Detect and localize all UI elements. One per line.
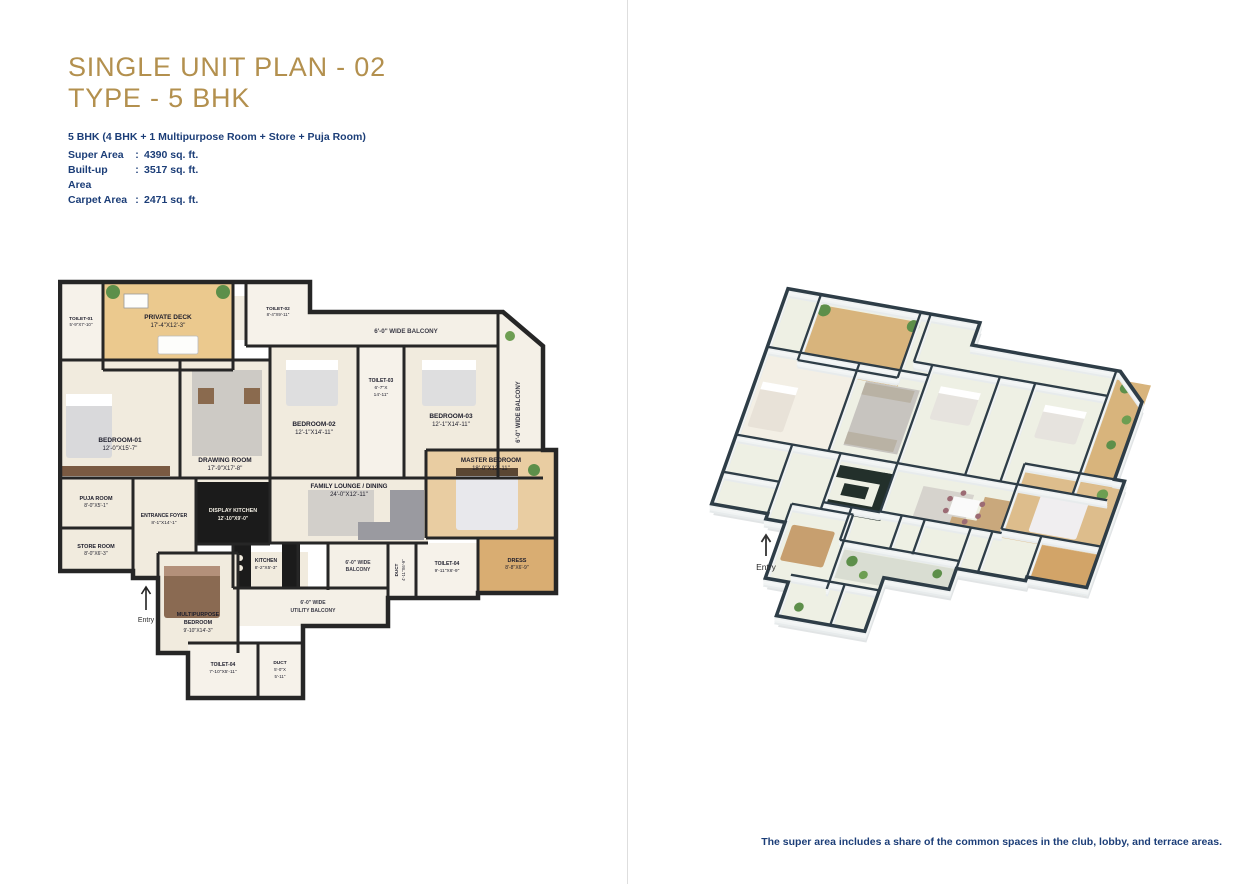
room-label-master: MASTER BEDROOM: [461, 457, 521, 464]
room-dims-kitchen: 8'-2''X5'-3'': [255, 565, 278, 571]
room-label-kitchen: KITCHEN: [255, 558, 278, 564]
room-label-multipurpose-l2: BEDROOM: [184, 620, 213, 626]
room-dims-family: 24'-0''X12'-11'': [330, 492, 368, 498]
builtup-area-row: Built-up Area : 3517 sq. ft.: [68, 163, 386, 193]
room-label-display-kitchen: DISPLAY KITCHEN: [209, 508, 257, 514]
room-dims-dress: 8'-8''X6'-9'': [505, 565, 529, 571]
room-label-duct2: DUCT: [273, 660, 286, 666]
room-label-duct1: DUCT: [394, 563, 399, 576]
room-label-foyer: ENTRANCE FOYER: [141, 513, 188, 519]
room-label-bedroom2: BEDROOM-02: [292, 421, 336, 428]
room-label-drawing: DRAWING ROOM: [198, 457, 251, 464]
room-label-multipurpose-l1: MULTIPURPOSE: [177, 612, 220, 618]
room-dims-duct2-l2: 5'-11'': [275, 674, 286, 679]
room-dims-display-kitchen: 12'-10''X9'-0'': [218, 516, 248, 522]
room-label-bedroom3: BEDROOM-03: [429, 413, 473, 420]
label-utility-balcony-l1: 6'-0'' WIDE: [300, 600, 326, 606]
page-title: SINGLE UNIT PLAN - 02 TYPE - 5 BHK: [68, 52, 386, 114]
room-dims-toilet4: 9'-11''X6'-9'': [435, 568, 460, 574]
title-line-2: TYPE - 5 BHK: [68, 83, 386, 114]
label-utility-balcony-l2: UTILITY BALCONY: [291, 608, 337, 614]
carpet-area-row: Carpet Area : 2471 sq. ft.: [68, 193, 386, 208]
area-label: Built-up Area: [68, 163, 130, 193]
header-block: SINGLE UNIT PLAN - 02 TYPE - 5 BHK 5 BHK…: [68, 52, 386, 208]
room-dims-bedroom1: 12'-0''X15'-7'': [103, 446, 138, 452]
unit-config: 5 BHK (4 BHK + 1 Multipurpose Room + Sto…: [68, 130, 386, 145]
room-dims-bedroom2: 12'-1''X14'-11'': [295, 430, 333, 436]
label-balcony-top: 6'-0'' WIDE BALCONY: [374, 328, 438, 335]
room-label-store: STORE ROOM: [77, 544, 115, 550]
entry-marker-2d: Entry: [138, 587, 155, 624]
area-value: 2471 sq. ft.: [144, 193, 198, 208]
room-label-private-deck: PRIVATE DECK: [144, 314, 192, 321]
room-label-toilet4: TOILET-04: [435, 561, 460, 567]
room-label-dress: DRESS: [508, 558, 527, 564]
super-area-row: Super Area : 4390 sq. ft.: [68, 148, 386, 163]
brochure-page: { "header": { "title_line1": "SINGLE UNI…: [0, 0, 1254, 884]
room-label-toilet3: TOILET-03: [369, 378, 394, 384]
plan3d-floors: [678, 298, 1169, 675]
room-dims-store: 8'-0''X6'-3'': [84, 551, 108, 557]
room-label-puja: PUJA ROOM: [79, 496, 113, 502]
label-balcony-bottom-l1: 6'-0'' WIDE: [345, 560, 371, 566]
room-label-family: FAMILY LOUNGE / DINING: [310, 483, 387, 490]
page-center-divider: [627, 0, 628, 884]
footnote: The super area includes a share of the c…: [761, 836, 1222, 848]
room-dims-duct1: 4'-11''X6'-9'': [401, 559, 406, 581]
room-label-toilet5: TOILET-04: [211, 662, 236, 668]
room-dims-foyer: 8'-1''X14'-1'': [151, 520, 176, 526]
area-label: Carpet Area: [68, 193, 130, 208]
room-dims-toilet1: 5'-9''X7'-10'': [69, 322, 92, 327]
room-dims-bedroom3: 12'-1''X14'-11'': [432, 422, 470, 428]
room-dims-toilet3-l1: 6'-7''X: [375, 385, 389, 391]
colon: :: [130, 193, 144, 208]
floor-plan-2d: TOILET-01 5'-9''X7'-10'' PRIVATE DECK 17…: [58, 276, 568, 706]
area-label: Super Area: [68, 148, 130, 163]
entry-label-3d: Entry: [756, 562, 777, 572]
room-label-bedroom1: BEDROOM-01: [98, 437, 142, 444]
unit-details: 5 BHK (4 BHK + 1 Multipurpose Room + Sto…: [68, 130, 386, 208]
label-balcony-bottom-l2: BALCONY: [346, 567, 371, 573]
room-dims-multipurpose: 9'-10''X14'-3'': [183, 628, 212, 634]
room-dims-drawing: 17'-9''X17'-8'': [208, 466, 243, 472]
room-dims-duct2-l1: 5'-0''X: [274, 667, 286, 672]
area-value: 4390 sq. ft.: [144, 148, 198, 163]
room-dims-toilet5: 7'-10''X5'-11'': [209, 669, 237, 675]
room-dims-toilet2: 8'-4''X9'-11'': [267, 312, 290, 317]
room-dims-toilet3-l2: 14'-11'': [374, 392, 389, 398]
entry-label-2d: Entry: [138, 617, 155, 624]
floor-plan-3d-isometric: Entry: [663, 272, 1213, 702]
room-dims-puja: 8'-0''X5'-1'': [84, 503, 108, 509]
label-balcony-right: 6'-0'' WIDE BALCONY: [516, 381, 522, 443]
colon: :: [130, 163, 144, 193]
room-dims-private-deck: 17'-4''X12'-3'': [151, 323, 186, 329]
area-value: 3517 sq. ft.: [144, 163, 198, 193]
title-line-1: SINGLE UNIT PLAN - 02: [68, 52, 386, 83]
colon: :: [130, 148, 144, 163]
room-dims-master: 18'-0''X12'-11'': [472, 466, 510, 472]
